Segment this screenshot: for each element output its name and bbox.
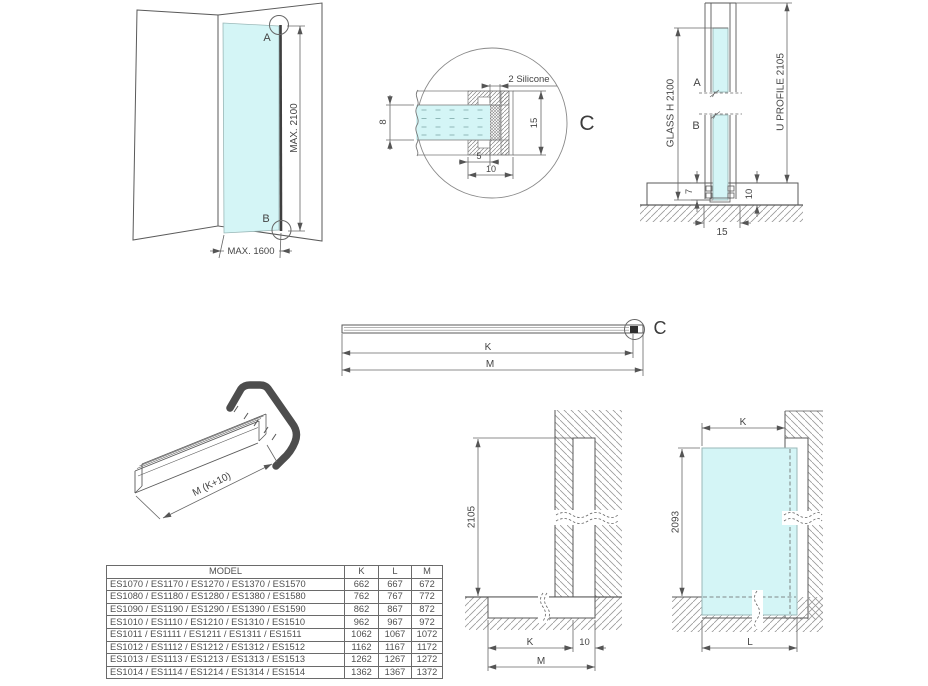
m-cell: 1372 xyxy=(412,666,443,679)
model-cell: ES1013 / ES1113 / ES1213 / ES1313 / ES15… xyxy=(107,654,345,667)
table-row: ES1010 / ES1110 / ES1210 / ES1310 / ES15… xyxy=(107,616,443,629)
l-cell: 1367 xyxy=(379,666,412,679)
k-cell: 1062 xyxy=(345,628,379,641)
svg-text:M: M xyxy=(486,359,494,370)
gasket-notch-bottom xyxy=(478,140,490,148)
m-cell: 1072 xyxy=(412,628,443,641)
svg-text:MAX. 1600: MAX. 1600 xyxy=(228,246,275,257)
svg-text:M (K+10): M (K+10) xyxy=(191,471,233,499)
model-cell: ES1014 / ES1114 / ES1214 / ES1314 / ES15… xyxy=(107,666,345,679)
installation-drawing-page: A B MAX. 2100 MAX. 1600 xyxy=(0,0,928,686)
table-row: ES1070 / ES1170 / ES1270 / ES1370 / ES15… xyxy=(107,578,443,591)
k-cell: 1362 xyxy=(345,666,379,679)
k-cell: 662 xyxy=(345,578,379,591)
glass-panel xyxy=(702,448,797,615)
svg-text:MAX. 2100: MAX. 2100 xyxy=(289,103,300,153)
svg-text:U PROFILE 2105: U PROFILE 2105 xyxy=(776,53,787,131)
bar-m-dimension: M xyxy=(342,334,643,376)
model-cell: ES1010 / ES1110 / ES1210 / ES1310 / ES15… xyxy=(107,616,345,629)
m-cell: 872 xyxy=(412,603,443,616)
l-cell: 867 xyxy=(379,603,412,616)
point-a-label: A xyxy=(263,32,271,44)
wall-elevation-drawing: 2105 K 10 M xyxy=(465,410,623,671)
glass-panel xyxy=(223,23,279,233)
l-cell: 967 xyxy=(379,616,412,629)
svg-text:15: 15 xyxy=(529,118,540,129)
model-cell: ES1011 / ES1111 / ES1211 / ES1311 / ES15… xyxy=(107,628,345,641)
k-cell: 1262 xyxy=(345,654,379,667)
header-m: M xyxy=(412,566,443,579)
table-row: ES1014 / ES1114 / ES1214 / ES1314 / ES15… xyxy=(107,666,443,679)
u-profile-section xyxy=(705,3,736,200)
svg-text:K: K xyxy=(527,637,534,648)
detail-c-drawing: 8 15 5 10 2 Silicone C xyxy=(378,48,595,198)
profile-bar xyxy=(342,325,643,333)
point-b-label: B xyxy=(262,213,269,225)
k-cell: 1162 xyxy=(345,641,379,654)
vertical-section-drawing: A B GLASS H 2100 U PROFILE 2105 7 10 xyxy=(640,3,803,238)
header-k: K xyxy=(345,566,379,579)
svg-text:10: 10 xyxy=(486,164,496,174)
svg-text:L: L xyxy=(747,637,753,648)
u-profile-height-dimension: U PROFILE 2105 xyxy=(736,3,792,183)
isometric-profile-drawing: M (K+10) xyxy=(135,385,296,519)
section-break-lines xyxy=(699,90,742,119)
svg-text:15: 15 xyxy=(716,227,728,238)
glass-height-dimension: 2093 xyxy=(671,448,701,596)
floor-hatch xyxy=(640,205,803,222)
header-l: L xyxy=(379,566,412,579)
table-row: ES1012 / ES1112 / ES1212 / ES1312 / ES15… xyxy=(107,641,443,654)
l-cell: 767 xyxy=(379,591,412,604)
model-cell: ES1090 / ES1190 / ES1290 / ES1390 / ES15… xyxy=(107,603,345,616)
silicone-seal xyxy=(490,105,500,140)
floor-break-mark xyxy=(752,590,763,629)
svg-text:5: 5 xyxy=(476,151,481,161)
svg-text:2 Silicone: 2 Silicone xyxy=(508,74,549,85)
svg-text:M: M xyxy=(537,656,545,667)
profile-back-strip xyxy=(509,91,513,155)
k-cell: 862 xyxy=(345,603,379,616)
svg-text:10: 10 xyxy=(744,189,755,200)
glass-thickness-dimension: 8 xyxy=(378,95,414,150)
max-width-dimension: MAX. 1600 xyxy=(210,233,292,258)
m-cell: 1172 xyxy=(412,641,443,654)
table-row: ES1090 / ES1190 / ES1290 / ES1390 / ES15… xyxy=(107,603,443,616)
left-wall-panel xyxy=(133,10,218,240)
svg-text:2105: 2105 xyxy=(467,505,478,528)
spec-table: MODEL K L M ES1070 / ES1170 / ES1270 / E… xyxy=(106,565,443,679)
svg-text:7: 7 xyxy=(684,189,695,194)
svg-text:K: K xyxy=(485,342,492,353)
l-cell: 1067 xyxy=(379,628,412,641)
spec-table-header-row: MODEL K L M xyxy=(107,566,443,579)
model-cell: ES1070 / ES1170 / ES1270 / ES1370 / ES15… xyxy=(107,578,345,591)
table-row: ES1011 / ES1111 / ES1211 / ES1311 / ES15… xyxy=(107,628,443,641)
svg-text:2093: 2093 xyxy=(671,510,682,533)
l-cell: 1267 xyxy=(379,654,412,667)
table-row: ES1080 / ES1180 / ES1280 / ES1380 / ES15… xyxy=(107,591,443,604)
m-cell: 772 xyxy=(412,591,443,604)
profile-right-wall-hatch xyxy=(501,91,509,155)
model-cell: ES1012 / ES1112 / ES1212 / ES1312 / ES15… xyxy=(107,641,345,654)
bar-end-cap xyxy=(630,326,638,333)
section-point-a-label: A xyxy=(693,77,701,89)
l-cell: 1167 xyxy=(379,641,412,654)
svg-text:8: 8 xyxy=(378,119,389,124)
k-cell: 962 xyxy=(345,616,379,629)
m-cell: 672 xyxy=(412,578,443,591)
header-model: MODEL xyxy=(107,566,345,579)
gasket-notch-top xyxy=(478,97,490,105)
bar-callout-label: C xyxy=(654,318,667,338)
glass-k-dimension: K xyxy=(702,417,785,446)
glass-elevation-drawing: K 2093 L xyxy=(671,411,824,652)
k-cell: 762 xyxy=(345,591,379,604)
svg-text:GLASS H 2100: GLASS H 2100 xyxy=(666,78,677,147)
profile-bar-drawing: C K M xyxy=(342,318,667,376)
model-cell: ES1080 / ES1180 / ES1280 / ES1380 / ES15… xyxy=(107,591,345,604)
l-cell: 667 xyxy=(379,578,412,591)
corner-overview-drawing: A B MAX. 2100 MAX. 1600 xyxy=(133,3,322,258)
wall-break-mark xyxy=(782,511,823,525)
svg-text:K: K xyxy=(740,417,747,428)
svg-text:10: 10 xyxy=(579,637,590,648)
m-cell: 972 xyxy=(412,616,443,629)
m-cell: 1272 xyxy=(412,654,443,667)
detail-callout-label: C xyxy=(579,112,594,135)
wall-break-mark xyxy=(552,510,623,525)
section-point-b-label: B xyxy=(692,120,699,132)
glass-edge-profile xyxy=(281,25,282,231)
table-row: ES1013 / ES1113 / ES1213 / ES1313 / ES15… xyxy=(107,654,443,667)
bottom-profile-break-mark xyxy=(538,592,550,623)
